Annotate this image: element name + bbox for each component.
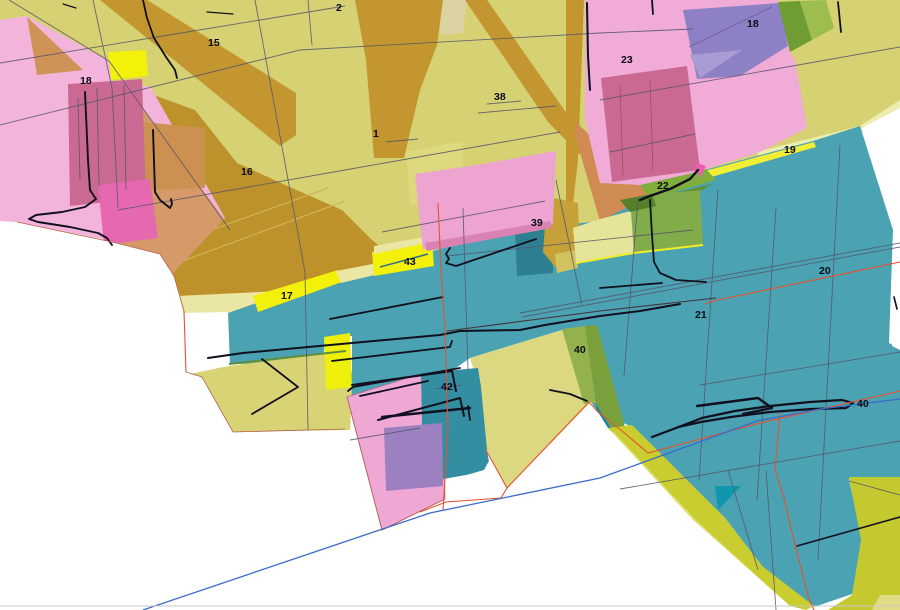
svg-text:16: 16 — [241, 166, 253, 178]
svg-text:18: 18 — [747, 18, 759, 30]
svg-text:39: 39 — [531, 217, 543, 229]
svg-text:20: 20 — [819, 265, 831, 277]
svg-text:23: 23 — [621, 54, 633, 66]
svg-text:1: 1 — [373, 128, 379, 140]
svg-text:42: 42 — [441, 381, 453, 393]
svg-text:38: 38 — [494, 91, 506, 103]
svg-text:40: 40 — [857, 398, 869, 410]
svg-text:22: 22 — [657, 180, 669, 192]
svg-text:43: 43 — [404, 256, 416, 268]
svg-text:17: 17 — [281, 290, 293, 302]
svg-text:19: 19 — [784, 144, 796, 156]
svg-text:21: 21 — [695, 309, 707, 321]
svg-text:40: 40 — [574, 344, 586, 356]
svg-text:15: 15 — [208, 37, 220, 49]
svg-text:2: 2 — [336, 2, 342, 14]
svg-text:18: 18 — [80, 75, 92, 87]
